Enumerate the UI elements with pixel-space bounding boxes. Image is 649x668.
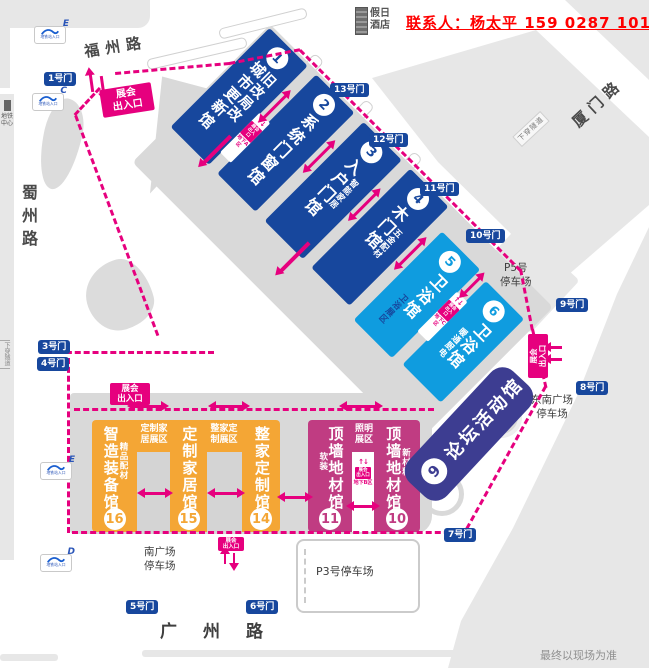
gate-8: 8号门 <box>576 381 608 395</box>
underground-entrance-b: ↑↓ 展会出入口 地下B区 <box>352 456 374 526</box>
gate-11: 11号门 <box>420 182 459 196</box>
south-entrance-arrow-up <box>224 553 226 564</box>
street-shuzhou: 蜀州路 <box>16 184 40 253</box>
hall-10-name: 顶墙地材馆 <box>384 426 400 511</box>
south-top-arrow-1 <box>134 405 162 408</box>
notch-arrow-3 <box>353 505 373 508</box>
metro-entrance-c: C 地铁站入口 <box>32 93 64 111</box>
block-top-left <box>0 0 150 28</box>
north-entrance-arrow-up <box>89 74 94 92</box>
west-entrance-box: 展会出入口 <box>110 383 150 405</box>
route-gate34-path <box>57 351 214 354</box>
metro-center-label: 地铁中心 <box>0 113 14 127</box>
metro-entrance-label: 地铁站入口 <box>36 35 65 39</box>
gate-13: 13号门 <box>330 83 369 97</box>
hall-16-sub-label: 精品配材 <box>118 442 127 511</box>
street-fuzhou: 福州路 <box>83 31 149 62</box>
hall-10-number: 10 <box>386 508 408 530</box>
south-entrance-box: 展会出入口 <box>218 537 244 551</box>
metro-entrance-label: 地铁站入口 <box>42 471 71 475</box>
metro-entrance-label: 地铁站入口 <box>34 102 63 106</box>
tunnel-tick-bottom <box>0 368 10 369</box>
sidewalk-bottom-left <box>0 654 58 661</box>
metro-entrance-label: 地铁站入口 <box>42 563 71 567</box>
gap-arrow-14-11 <box>284 496 306 499</box>
metro-letter: D <box>68 547 75 557</box>
hall-9-number: 9 <box>416 453 453 490</box>
entrance-arrows-icon: ↑↓ <box>358 458 368 466</box>
hall-11-name: 顶墙地材馆 <box>327 426 343 511</box>
metro-letter: E <box>69 455 75 465</box>
exhibition-map: 地铁中心 1 城市更新馆 旧改局改 2 系统门窗馆 3 <box>0 0 649 668</box>
notch-arrow-2 <box>214 492 238 495</box>
metro-entrance-e-north: E 地铁站入口 <box>34 26 66 44</box>
block-left-strip-top <box>0 0 10 88</box>
street-guangzhou: 广州路 <box>160 617 289 642</box>
south-top-arrow-3 <box>346 405 376 408</box>
gate-12: 12号门 <box>369 133 408 147</box>
hall-11: 软装 顶墙地材馆 11 <box>308 420 352 532</box>
metro-entrance-d: D 地铁站入口 <box>40 554 72 572</box>
hotel-label: 假日酒店 <box>370 8 390 32</box>
gate-9: 9号门 <box>556 298 588 312</box>
metro-center-icon <box>4 100 11 111</box>
gate-5: 5号门 <box>126 600 158 614</box>
hall-11-number: 11 <box>319 508 341 530</box>
underground-entrance-b-label: 地下B区 <box>354 480 373 486</box>
block-left-strip-bottom <box>0 238 14 560</box>
metro-letter: C <box>60 86 67 96</box>
hall-15: 定制家居馆 15 <box>170 420 207 532</box>
pond-blob <box>78 253 160 338</box>
north-entrance-box: 展会出入口 <box>99 82 155 118</box>
hall-16-number: 16 <box>104 508 126 530</box>
gate-10: 10号门 <box>466 229 505 243</box>
exhibition-complex-south: 定制家居展区 整家定制展区 智造装备馆 精品配材 16 定制家居馆 15 整家定… <box>70 393 432 534</box>
hall-15-name: 定制家居馆 <box>181 426 197 511</box>
disclaimer-note: 最终以现场为准 <box>540 647 617 663</box>
gate-3: 3号门 <box>38 340 70 354</box>
tunnel-tick-top <box>0 340 10 341</box>
gate-4: 4号门 <box>37 357 69 371</box>
zone-custom-home: 定制家居展区 <box>133 424 175 445</box>
gate-6: 6号门 <box>246 600 278 614</box>
magenta-block: 照明展区 软装 顶墙地材馆 11 顶墙地材馆 新材料 10 ↑↓ <box>308 420 420 532</box>
route-south-edge <box>72 531 468 534</box>
notch-arrow-1 <box>144 492 166 495</box>
p3-parking-label: P3号停车场 <box>316 565 374 579</box>
south-top-arrow-2 <box>215 405 243 408</box>
east-entrance-arrow-1 <box>550 346 562 349</box>
hall-14-number: 14 <box>250 508 272 530</box>
hall-14: 整家定制馆 14 <box>242 420 280 532</box>
orange-block: 定制家居展区 整家定制展区 智造装备馆 精品配材 16 定制家居馆 15 整家定… <box>92 420 280 532</box>
hall-16-name: 智造装备馆 <box>102 426 118 511</box>
metro-entrance-e-south: E 地铁站入口 <box>40 462 72 480</box>
underground-entrance-b-box: 展会出入口 <box>355 467 371 479</box>
south-entrance-arrow-down <box>233 553 235 564</box>
contact-link[interactable]: 联系人：杨太平 159 0287 1013 <box>406 12 649 33</box>
hall-14-name: 整家定制馆 <box>253 426 269 511</box>
hall-11-sub-label: 软装 <box>317 452 326 511</box>
zone-whole-home: 整家定制展区 <box>203 424 245 445</box>
hotel-building-icon <box>355 7 368 35</box>
hall-15-number: 15 <box>178 508 200 530</box>
gate-1: 1号门 <box>44 72 76 86</box>
tunnel-label-west: 下穿隧道 <box>2 342 11 366</box>
south-plaza-label: 南广场停车场 <box>144 546 176 573</box>
route-entrance-link <box>74 87 101 116</box>
gate-7: 7号门 <box>444 528 476 542</box>
east-entrance-box: 展会出入口 <box>528 334 548 378</box>
hall-16: 智造装备馆 精品配材 16 <box>92 420 137 532</box>
route-west-vertical <box>67 358 70 533</box>
east-entrance-arrow-2 <box>550 358 562 361</box>
metro-letter: E <box>63 19 69 29</box>
